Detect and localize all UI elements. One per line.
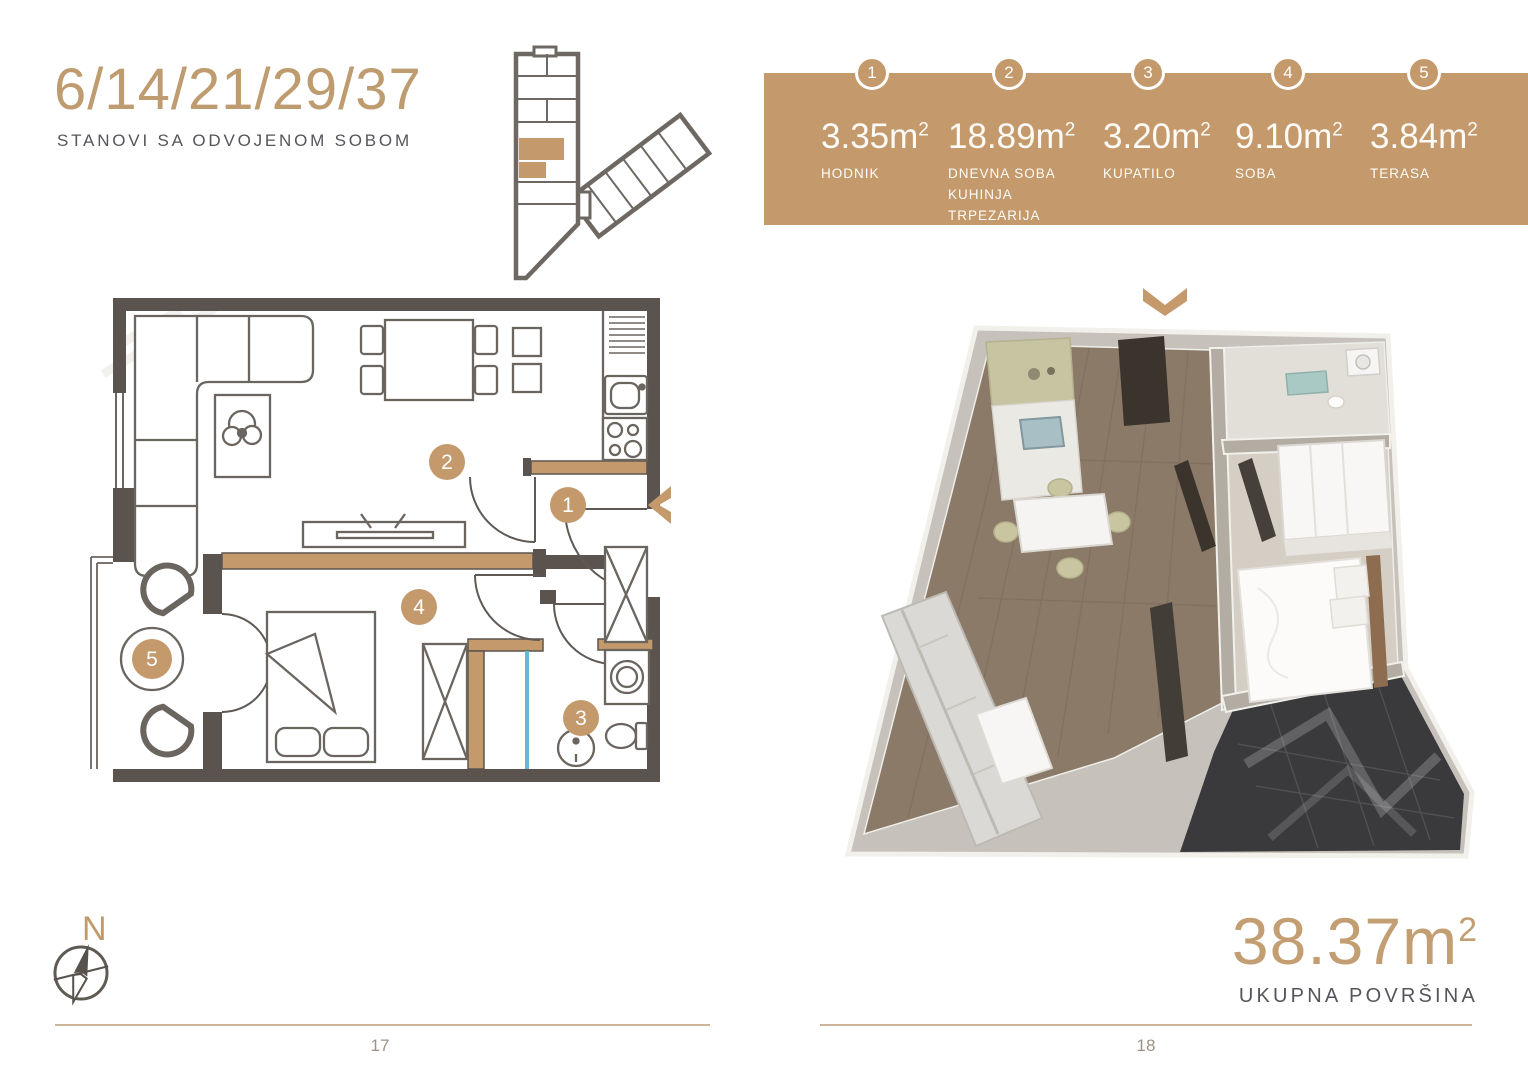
bed-icon: [267, 612, 375, 762]
kitchen-icons: [513, 311, 647, 460]
render-kitchen: [986, 338, 1082, 500]
legend-num-3: 3: [1143, 63, 1152, 83]
legend-item-terasa: 3.84m2 TERASA: [1370, 117, 1478, 185]
svg-text:2: 2: [441, 451, 453, 474]
legend-item-dnevna-soba: 18.89m2 DNEVNA SOBA KUHINJA TRPEZARIJA: [948, 117, 1075, 227]
floor-plan-2d: 2 1 4 3 5: [85, 292, 675, 792]
legend-room-label: KUPATILO: [1103, 164, 1211, 185]
legend-room-label: SOBA: [1235, 164, 1343, 185]
legend-area-value: 18.89m2: [948, 117, 1075, 157]
total-area-value: 38.37m2: [1232, 903, 1478, 979]
legend-item-kupatilo: 3.20m2 KUPATILO: [1103, 117, 1211, 185]
legend-circle-2: 2: [992, 56, 1026, 90]
badge-room-3: 3: [563, 700, 599, 736]
badge-room-4: 4: [401, 589, 437, 625]
terrace-railing: [91, 557, 113, 769]
legend-num-5: 5: [1419, 63, 1428, 83]
page-number-right: 18: [1124, 1036, 1168, 1056]
footer-rule-right: [820, 1024, 1472, 1026]
compass-north-label: N: [82, 910, 107, 948]
hall-closet-icon: [605, 547, 647, 642]
site-key-plan: [486, 42, 714, 290]
shower-glass: [525, 651, 529, 769]
dining-set-icon: [361, 320, 497, 400]
legend-area-value: 3.84m2: [1370, 117, 1478, 157]
washing-machine-icon: [605, 650, 649, 704]
badge-room-5: 5: [132, 639, 172, 679]
badge-room-1: 1: [550, 487, 586, 523]
total-area-label: UKUPNA POVRŠINA: [1232, 985, 1478, 1008]
legend-num-1: 1: [867, 63, 876, 83]
legend-item-hodnik: 3.35m2 HODNIK: [821, 117, 929, 185]
page-number-left: 17: [358, 1036, 402, 1056]
total-area-block: 38.37m2 UKUPNA POVRŠINA: [1232, 903, 1478, 1008]
render-wardrobe: [1278, 440, 1392, 556]
tv-console-icon: [303, 514, 465, 547]
compass: N: [40, 898, 130, 1018]
legend-item-soba: 9.10m2 SOBA: [1235, 117, 1343, 185]
svg-text:1: 1: [562, 494, 574, 517]
legend-room-label: DNEVNA SOBA KUHINJA TRPEZARIJA: [948, 164, 1075, 227]
legend-circle-5: 5: [1407, 56, 1441, 90]
window: [116, 393, 123, 488]
chevron-down-icon: [1143, 288, 1187, 316]
legend-room-label: TERASA: [1370, 164, 1478, 185]
svg-text:3: 3: [575, 707, 587, 730]
wardrobe-icon: [423, 644, 467, 759]
legend-circle-4: 4: [1271, 56, 1305, 90]
legend-circle-1: 1: [855, 56, 889, 90]
toilet-icon: [606, 723, 647, 749]
legend-num-4: 4: [1283, 63, 1292, 83]
svg-text:4: 4: [413, 596, 425, 619]
badge-room-2: 2: [429, 444, 465, 480]
legend-room-label: HODNIK: [821, 164, 929, 185]
floor-plan-3d-render: [818, 278, 1528, 863]
svg-text:5: 5: [146, 648, 158, 671]
render-bed: [1238, 555, 1388, 702]
page-subtitle: STANOVI SA ODVOJENOM SOBOM: [57, 131, 412, 151]
page-title: 6/14/21/29/37: [54, 56, 422, 123]
legend-area-value: 3.35m2: [821, 117, 929, 157]
legend-area-value: 3.20m2: [1103, 117, 1211, 157]
area-legend-banner: 1 2 3 4 5 3.35m2 HODNIK 18.89m2 DNEVNA S…: [764, 73, 1528, 225]
coffee-table-icon: [215, 395, 270, 477]
legend-num-2: 2: [1004, 63, 1013, 83]
legend-circle-3: 3: [1131, 56, 1165, 90]
legend-area-value: 9.10m2: [1235, 117, 1343, 157]
bath-sink-icon: [558, 730, 594, 766]
footer-rule-left: [55, 1024, 710, 1026]
